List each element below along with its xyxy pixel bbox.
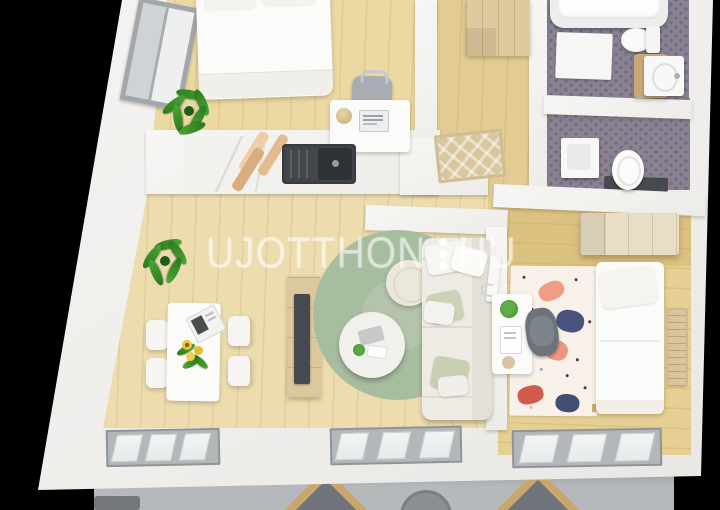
wc-toilet xyxy=(612,150,644,190)
watermark-dots-separator xyxy=(439,238,447,270)
bedroom2-wardrobe xyxy=(580,213,679,255)
bed1-pillow xyxy=(204,0,256,12)
window-group xyxy=(512,428,663,469)
watermark: UJOTTHON HU xyxy=(206,231,517,277)
balcony-side-table xyxy=(400,490,452,510)
table-lamp xyxy=(336,108,352,124)
bed2-pillow xyxy=(598,264,659,309)
coffee-table xyxy=(339,312,405,378)
notebook xyxy=(500,326,522,354)
table-plant-sprig xyxy=(353,344,365,356)
bath-mat xyxy=(555,32,613,80)
dining-chair xyxy=(146,358,168,388)
watermark-dot xyxy=(439,262,447,270)
kitchen-sink xyxy=(282,144,356,184)
bed1-pillow xyxy=(262,0,316,8)
bedroom1-plant xyxy=(158,82,226,144)
watermark-tld: HU xyxy=(458,229,516,278)
watermark-dot xyxy=(439,238,447,246)
desk-plant xyxy=(500,300,518,318)
magazine-stack xyxy=(358,325,385,345)
balcony-ac-unit xyxy=(94,496,140,510)
sofa-throw xyxy=(423,300,456,326)
cup xyxy=(502,356,515,369)
sofa-throw xyxy=(437,374,469,397)
door-handle xyxy=(480,283,493,297)
dining-chair xyxy=(228,356,252,386)
bed-2 xyxy=(596,262,664,414)
terrazzo-blob-coral xyxy=(536,277,567,304)
terrazzo-blob-red xyxy=(516,383,546,407)
bathtub xyxy=(550,0,668,28)
chair-handle xyxy=(360,70,388,84)
hallway-doormat xyxy=(434,129,507,184)
sunflower-bouquet xyxy=(174,336,214,374)
plant-center xyxy=(184,106,194,116)
vanity-sink xyxy=(644,56,684,96)
floorplan-stage: UJOTTHON HU xyxy=(0,0,720,510)
terrazzo-blob-navy xyxy=(555,393,581,413)
living-plant xyxy=(138,230,200,296)
bed2-frame-end xyxy=(596,400,664,414)
laptop xyxy=(359,110,389,132)
window-group xyxy=(330,426,463,466)
wc-hand-basin xyxy=(561,138,599,178)
dining-chair xyxy=(228,316,252,346)
window-group xyxy=(106,428,221,467)
dining-chair xyxy=(146,320,168,350)
faucet xyxy=(674,73,680,79)
hallway-wardrobe xyxy=(466,0,530,56)
watermark-brand: UJOTTHON xyxy=(206,229,426,278)
watermark-dot xyxy=(439,250,447,258)
sink-faucet xyxy=(332,160,339,167)
radiator xyxy=(666,308,688,388)
tv xyxy=(294,294,310,384)
bathroom-toilet-tank xyxy=(646,26,660,53)
terrazzo-blob-navy xyxy=(554,308,586,335)
book xyxy=(366,345,387,360)
